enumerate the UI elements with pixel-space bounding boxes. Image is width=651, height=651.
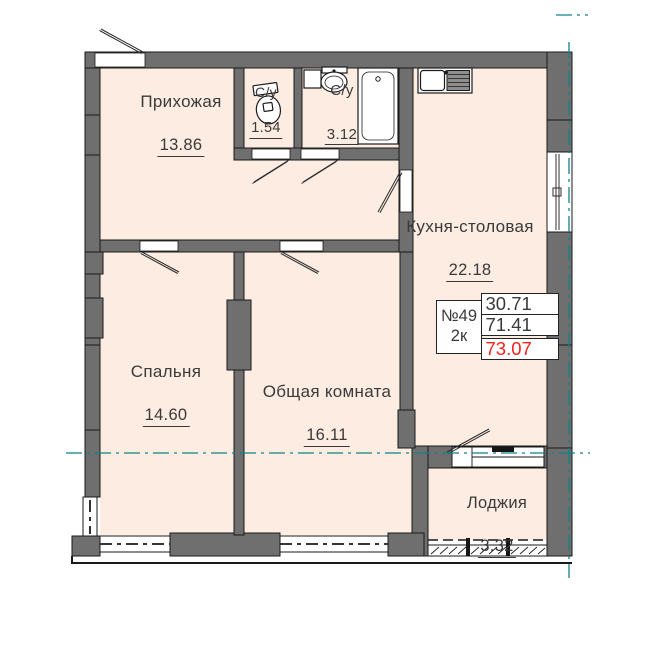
room-area-wc-big: 3.12: [325, 126, 359, 145]
room-area-loggia: 3.32: [478, 537, 515, 558]
wall-bedroom-living: [234, 252, 244, 535]
room-name-kitchen: Кухня-столовая: [406, 217, 534, 237]
room-name-bedroom: Спальня: [131, 362, 201, 382]
room-label-kitchen: Кухня-столовая 22.18: [406, 217, 534, 282]
wall-bedroom-living-pier: [227, 300, 251, 370]
kitchen-sink-icon: [418, 68, 472, 93]
washing-machine-icon: [304, 70, 321, 88]
wall-between-wc: [294, 68, 302, 152]
wall-living-kitchen-pier: [398, 410, 415, 448]
entrance-door-opening: [95, 53, 145, 67]
wall-bottom-center-pier: [170, 533, 280, 556]
wc-small-door-opening: [252, 149, 290, 159]
wc-big-door-opening: [301, 149, 339, 159]
apartment-rooms-count: 2к: [451, 327, 467, 347]
room-name-wc-big: С/у: [325, 82, 359, 99]
bathtub-icon: [358, 68, 398, 144]
living-door-opening: [280, 241, 323, 251]
total-area-value: 73.07: [481, 338, 559, 360]
room-label-wc-big: С/у 3.12: [325, 82, 359, 145]
wall-wc-left: [234, 68, 244, 160]
room-label-living: Общая комната 16.11: [263, 382, 392, 447]
apartment-info-box: №49 2к 30.71 71.41 73.07: [436, 293, 559, 360]
room-label-bedroom: Спальня 14.60: [131, 362, 201, 427]
floor-area-value: 71.41: [481, 314, 559, 336]
wall-right-loggia: [547, 448, 572, 556]
room-area-wc-small: 1.54: [249, 120, 282, 139]
kitchen-door-opening: [400, 170, 412, 212]
room-area-living: 16.11: [304, 426, 350, 447]
room-area-bedroom: 14.60: [143, 406, 190, 427]
room-label-loggia: Лоджия 3.32: [467, 494, 527, 558]
living-area-value: 30.71: [481, 293, 559, 315]
wall-right-upper: [547, 52, 572, 152]
wall-left-exterior: [85, 68, 100, 497]
room-area-kitchen: 22.18: [447, 261, 494, 282]
room-name-hallway: Прихожая: [140, 92, 221, 112]
apartment-areas-column: 30.71 71.41 73.07: [481, 293, 559, 360]
room-label-wc-small: С/у 1.54: [249, 84, 282, 139]
wall-left-pier-2: [85, 298, 103, 338]
entrance-door-swing-icon: [100, 29, 144, 54]
room-name-loggia: Лоджия: [467, 494, 527, 513]
wall-top-exterior: [85, 52, 572, 68]
floor-plan-canvas: Прихожая 13.86 С/у 1.54 С/у 3.12 Кухня-с…: [0, 0, 651, 651]
balcony-block-sill: [492, 447, 514, 452]
room-name-wc-small: С/у: [249, 84, 282, 100]
kitchen-window: [547, 152, 572, 232]
wall-bottom-right-pier: [388, 533, 424, 556]
room-area-hallway: 13.86: [158, 136, 205, 157]
room-label-hallway: Прихожая 13.86: [140, 92, 221, 157]
room-name-living: Общая комната: [263, 382, 392, 402]
apartment-number: №49: [441, 307, 477, 327]
bedroom-door-opening: [140, 241, 178, 251]
wall-left-pier-1: [85, 252, 103, 274]
apartment-id-cell: №49 2к: [436, 300, 482, 354]
wall-bottom-left-corner: [72, 536, 100, 556]
